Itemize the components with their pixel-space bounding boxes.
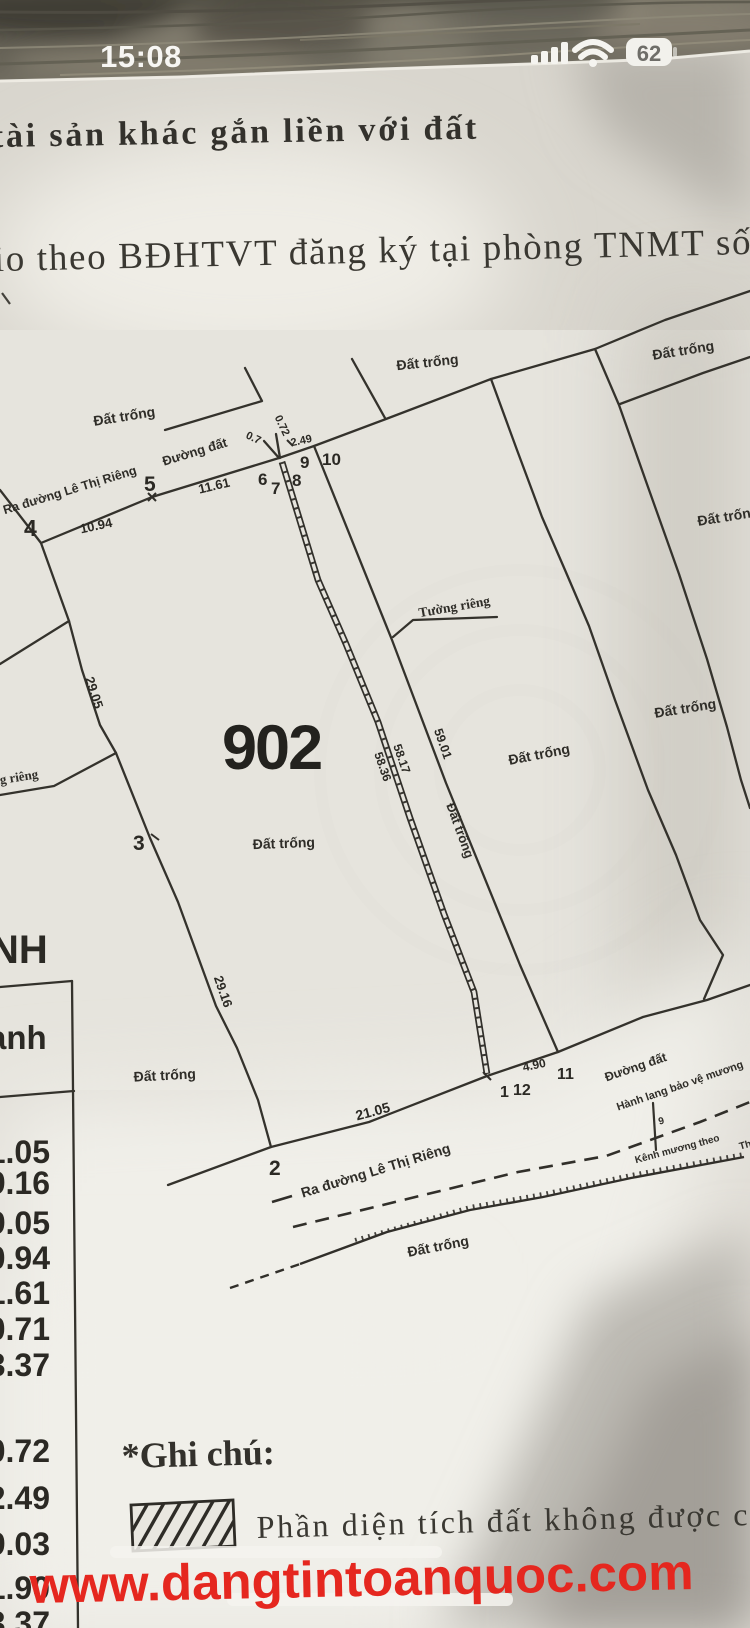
svg-text:5: 5 (144, 473, 156, 496)
svg-text:8: 8 (292, 471, 301, 490)
svg-text:7: 7 (271, 479, 280, 498)
svg-text:3.37: 3.37 (0, 1347, 50, 1383)
svg-text:9.05: 9.05 (0, 1205, 50, 1241)
svg-text:*Ghi chú:: *Ghi chú: (121, 1432, 275, 1476)
svg-text:Đất trống: Đất trống (252, 834, 315, 852)
svg-text:Đất trống: Đất trống (133, 1065, 196, 1084)
svg-text:2.49: 2.49 (0, 1480, 50, 1516)
svg-text:12: 12 (513, 1082, 531, 1099)
svg-text:1: 1 (500, 1084, 509, 1101)
svg-text:10: 10 (322, 450, 341, 469)
svg-text:0.71: 0.71 (0, 1311, 50, 1347)
svg-text:11: 11 (557, 1066, 574, 1083)
svg-text:4: 4 (24, 515, 37, 541)
svg-text:6: 6 (258, 470, 267, 489)
svg-text:2: 2 (269, 1157, 281, 1180)
svg-text:anh: anh (0, 1019, 47, 1056)
svg-text:1.61: 1.61 (0, 1275, 50, 1311)
svg-text:NH: NH (0, 928, 48, 972)
svg-text:3: 3 (133, 832, 145, 855)
svg-text:9: 9 (300, 453, 309, 472)
svg-text:0.72: 0.72 (0, 1433, 50, 1469)
svg-text:9.16: 9.16 (0, 1165, 50, 1201)
svg-text:Th: Th (738, 1139, 750, 1153)
svg-text:62: 62 (637, 41, 661, 66)
svg-text:902: 902 (222, 713, 321, 783)
svg-text:15:08: 15:08 (100, 39, 182, 74)
svg-text:0.94: 0.94 (0, 1240, 50, 1276)
